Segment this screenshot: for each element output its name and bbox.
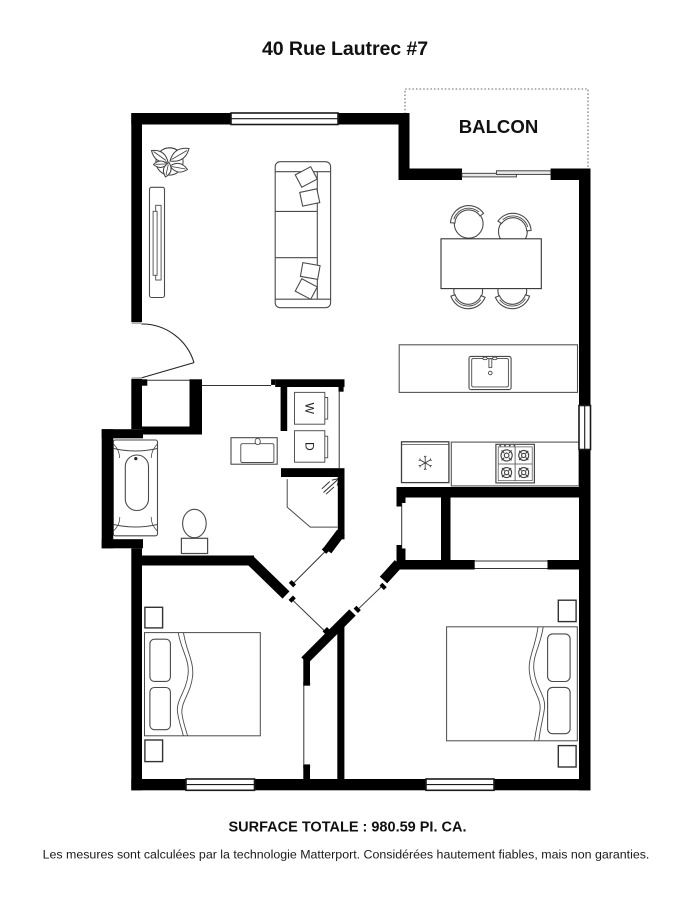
svg-text:BALCON: BALCON [459,116,539,137]
svg-text:D: D [303,442,317,451]
svg-text:40 Rue Lautrec #7: 40 Rue Lautrec #7 [262,38,428,60]
svg-text:SURFACE TOTALE : 980.59 PI. CA: SURFACE TOTALE : 980.59 PI. CA. [229,820,467,836]
svg-text:W: W [303,403,317,415]
svg-text:Les mesures sont calculées par: Les mesures sont calculées par la techno… [43,847,650,861]
